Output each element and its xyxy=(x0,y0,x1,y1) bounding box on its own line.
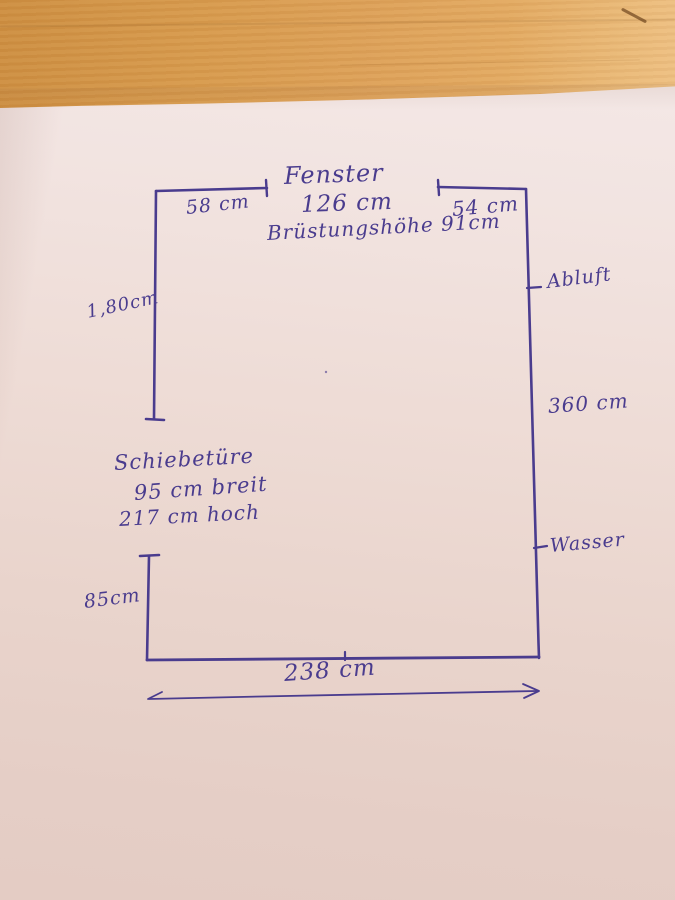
window-label: Fenster xyxy=(284,159,385,190)
right-wall-line xyxy=(526,189,539,658)
abluft-tick xyxy=(527,287,541,288)
photo-of-sketch: Fenster 126 cm Brüstungshöhe 91cm 58 cm … xyxy=(0,0,675,900)
window-width-label: 126 cm xyxy=(301,189,394,218)
ink-speck xyxy=(325,371,327,373)
room-outline-drawing xyxy=(0,0,675,900)
left-lower-wall-line xyxy=(140,555,159,660)
bottom-dimension-arrow xyxy=(148,684,539,699)
